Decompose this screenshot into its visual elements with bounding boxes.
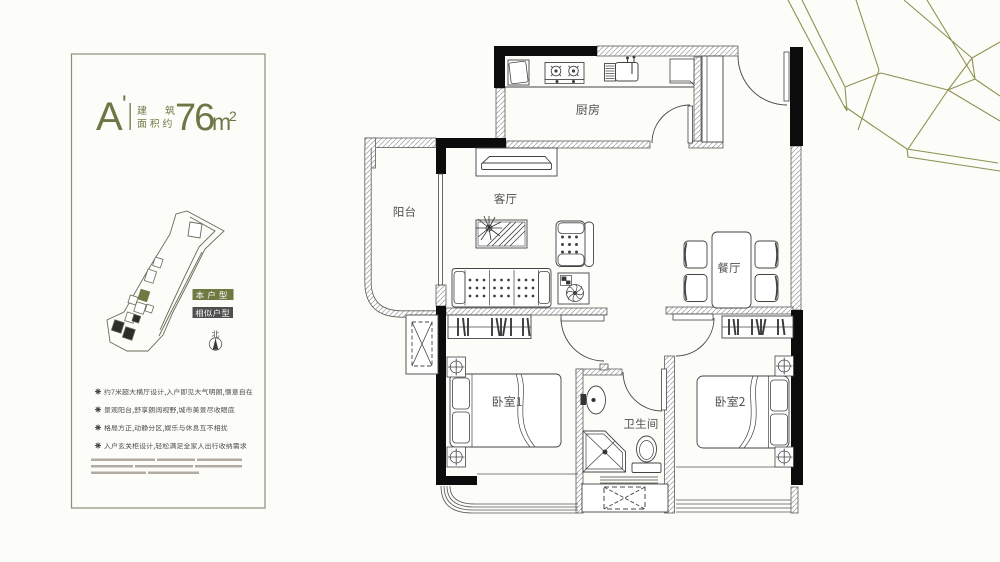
svg-text:': ': [122, 91, 127, 118]
svg-text:2: 2: [229, 108, 237, 124]
svg-text:A: A: [96, 95, 123, 139]
svg-text:76: 76: [175, 97, 214, 139]
